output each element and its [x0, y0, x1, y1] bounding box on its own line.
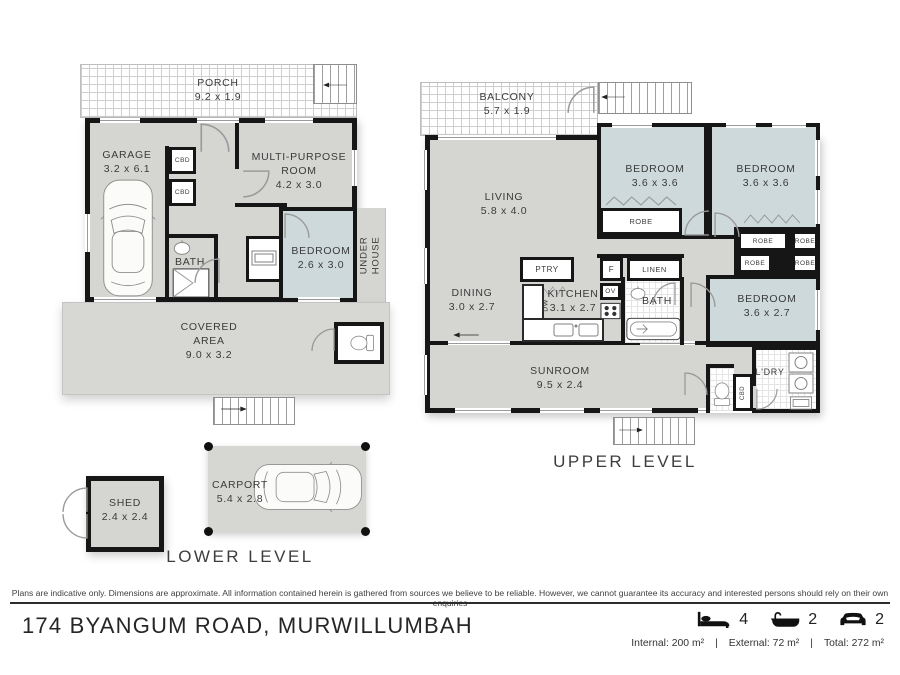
bath-count: 2	[808, 611, 817, 629]
wall	[235, 123, 239, 169]
upper-level-title: UPPER LEVEL	[525, 452, 725, 472]
external-area: External: 72 m²	[729, 638, 799, 649]
cbd-label: CBD	[175, 189, 190, 196]
dining-label: DINING 3.0 x 2.7	[432, 286, 512, 314]
toilet-icon	[712, 380, 732, 408]
cbd-closet: CBD	[733, 374, 753, 411]
oven-label: OV	[605, 288, 615, 295]
pantry-box: PTRY	[520, 257, 574, 282]
stairs-arrow-icon	[600, 93, 626, 101]
laundry-label: L'DRY	[750, 366, 790, 378]
room-name: SUNROOM	[530, 364, 590, 378]
door-arc	[684, 210, 710, 236]
bedroom1-label: BEDROOM 3.6 x 3.6	[613, 162, 697, 190]
window	[265, 118, 313, 123]
separator: |	[715, 638, 718, 649]
room-dim: 3.6 x 2.7	[744, 306, 791, 320]
door-arc	[284, 213, 310, 239]
lower-level-title: LOWER LEVEL	[140, 547, 340, 567]
room-name: CARPORT	[212, 478, 268, 492]
room-dim: 3.6 x 3.6	[632, 176, 679, 190]
cbd-label: CBD	[175, 157, 190, 164]
robe-box: ROBE	[600, 208, 682, 235]
window	[815, 190, 820, 224]
sliding-door-opening	[438, 135, 556, 140]
area-summary: Internal: 200 m² | External: 72 m² | Tot…	[631, 638, 884, 649]
stairs-arrow-icon	[322, 81, 348, 89]
carport-post	[204, 527, 213, 536]
window	[612, 123, 652, 128]
carport-post	[361, 527, 370, 536]
door-opening	[448, 341, 510, 345]
disclaimer-text: Plans are indicative only. Dimensions ar…	[10, 588, 890, 608]
room-dim: 9.2 x 1.9	[195, 90, 242, 104]
bedroom2-label: BEDROOM 3.6 x 3.6	[724, 162, 808, 190]
covered-area-label: COVERED AREA 9.0 x 3.2	[159, 320, 259, 363]
window	[455, 408, 511, 413]
under-house-label: UNDER HOUSE	[359, 236, 384, 274]
door-arc	[690, 282, 716, 308]
stairs-arrow-icon	[220, 405, 248, 413]
window	[100, 118, 140, 123]
sink-icon	[172, 240, 192, 255]
room-dim: 9.0 x 3.2	[186, 348, 233, 362]
robe-label: ROBE	[753, 238, 773, 245]
room-name: L'DRY	[755, 366, 784, 378]
property-address: 174 BYANGUM ROAD, MURWILLUMBAH	[22, 613, 473, 639]
room-name: GARAGE	[102, 148, 151, 162]
room-name: COVERED AREA	[181, 320, 238, 348]
linen-box: LINEN	[627, 258, 682, 281]
porch-label: PORCH 9.2 x 1.9	[168, 76, 268, 104]
window	[815, 290, 820, 330]
robe-label: ROBE	[795, 238, 815, 245]
bed-icon	[697, 610, 731, 629]
kitchen-sink-icon	[552, 322, 600, 338]
sunroom-label: SUNROOM 9.5 x 2.4	[515, 364, 605, 392]
balcony-label: BALCONY 5.7 x 1.9	[462, 90, 552, 118]
wall	[165, 234, 218, 238]
property-stats: 4 2 2	[697, 610, 884, 629]
door-arc	[62, 513, 88, 539]
window	[540, 408, 584, 413]
room-dim: 5.8 x 4.0	[481, 204, 528, 218]
room-name: BEDROOM	[736, 162, 795, 176]
window	[422, 150, 427, 190]
carport-label: CARPORT 5.4 x 2.8	[200, 478, 280, 506]
window	[85, 214, 90, 252]
washer-dryer-icon	[788, 352, 814, 394]
tub-icon	[251, 250, 277, 266]
bedroom3-label: BEDROOM 3.6 x 2.7	[725, 292, 809, 320]
robe-box: ROBE	[738, 253, 772, 273]
kitchen-label: KITCHEN 3.1 x 2.7	[541, 287, 605, 315]
fridge-box: F	[600, 258, 623, 281]
robe-box: ROBE	[792, 253, 818, 273]
carport-post	[204, 442, 213, 451]
window	[600, 408, 652, 413]
bathtub-icon	[626, 317, 681, 341]
oven-box: OV	[600, 283, 621, 300]
stairs-arrow-icon	[618, 426, 644, 434]
cbd-closet: CBD	[169, 179, 196, 206]
room-dim: 3.1 x 2.7	[550, 301, 597, 315]
room-name: KITCHEN	[548, 287, 599, 301]
door-arc	[311, 328, 335, 352]
door-arc	[242, 170, 270, 198]
living-label: LIVING 5.8 x 4.0	[464, 190, 544, 218]
fridge-label: F	[609, 265, 614, 274]
room-dim: 5.4 x 2.8	[217, 492, 264, 506]
robe-zigzag-icon	[606, 196, 676, 206]
car-count: 2	[875, 611, 884, 629]
room-dim: 2.4 x 2.4	[102, 510, 149, 524]
cbd-label: CBD	[740, 385, 746, 399]
floorplan-canvas: PORCH 9.2 x 1.9 UNDER HOUSE GARAGE 3.2 x…	[0, 0, 900, 675]
room-name: PORCH	[197, 76, 238, 90]
room-name: LIVING	[485, 190, 524, 204]
shed-label: SHED 2.4 x 2.4	[86, 496, 164, 524]
room-name: BEDROOM	[625, 162, 684, 176]
car-top-icon	[100, 176, 156, 300]
door-arc	[62, 487, 88, 513]
door-arc	[684, 372, 708, 396]
toilet-icon	[349, 333, 375, 353]
divider	[10, 602, 890, 604]
lower-bedroom-label: BEDROOM 2.6 x 3.0	[281, 244, 361, 272]
room-dim: 2.6 x 3.0	[298, 258, 345, 272]
room-name: DINING	[452, 286, 493, 300]
carport-post	[361, 442, 370, 451]
room-dim: 9.5 x 2.4	[537, 378, 584, 392]
door-arc	[200, 123, 230, 153]
room-dim: 3.2 x 6.1	[104, 162, 151, 176]
internal-area: Internal: 200 m²	[631, 638, 704, 649]
bath-icon	[770, 611, 800, 629]
room-name: BEDROOM	[737, 292, 796, 306]
laundry-tub-icon	[788, 396, 814, 410]
linen-label: LINEN	[642, 265, 667, 274]
cbd-closet: CBD	[169, 147, 196, 174]
car-icon	[839, 611, 867, 628]
door-arc	[567, 86, 595, 114]
robe-zigzag-icon	[744, 214, 800, 224]
room-dim: 5.7 x 1.9	[484, 104, 531, 118]
room-name: SHED	[109, 496, 141, 510]
total-area: Total: 272 m²	[824, 638, 884, 649]
window	[422, 355, 427, 395]
door-arc	[652, 282, 676, 306]
robe-box: ROBE	[792, 231, 818, 251]
robe-box: ROBE	[738, 231, 788, 251]
window	[726, 123, 756, 128]
window	[772, 123, 806, 128]
door-arc	[756, 388, 778, 410]
window	[352, 150, 357, 186]
window	[815, 140, 820, 176]
room-name: BALCONY	[479, 90, 534, 104]
robe-label: ROBE	[795, 260, 815, 267]
door-arc	[714, 212, 740, 238]
room-dim: 4.2 x 3.0	[276, 178, 323, 192]
door-arc	[194, 258, 220, 284]
room-dim: 3.0 x 2.7	[449, 300, 496, 314]
garage-label: GARAGE 3.2 x 6.1	[87, 148, 167, 176]
window	[422, 248, 427, 284]
slider-arrow-icon	[452, 331, 480, 339]
robe-label: ROBE	[629, 217, 652, 226]
cooktop-icon	[600, 302, 621, 320]
room-dim: 3.6 x 3.6	[743, 176, 790, 190]
separator: |	[810, 638, 813, 649]
room-name: BEDROOM	[291, 244, 350, 258]
pantry-label: PTRY	[535, 265, 558, 274]
bed-count: 4	[739, 611, 748, 629]
robe-label: ROBE	[745, 260, 765, 267]
